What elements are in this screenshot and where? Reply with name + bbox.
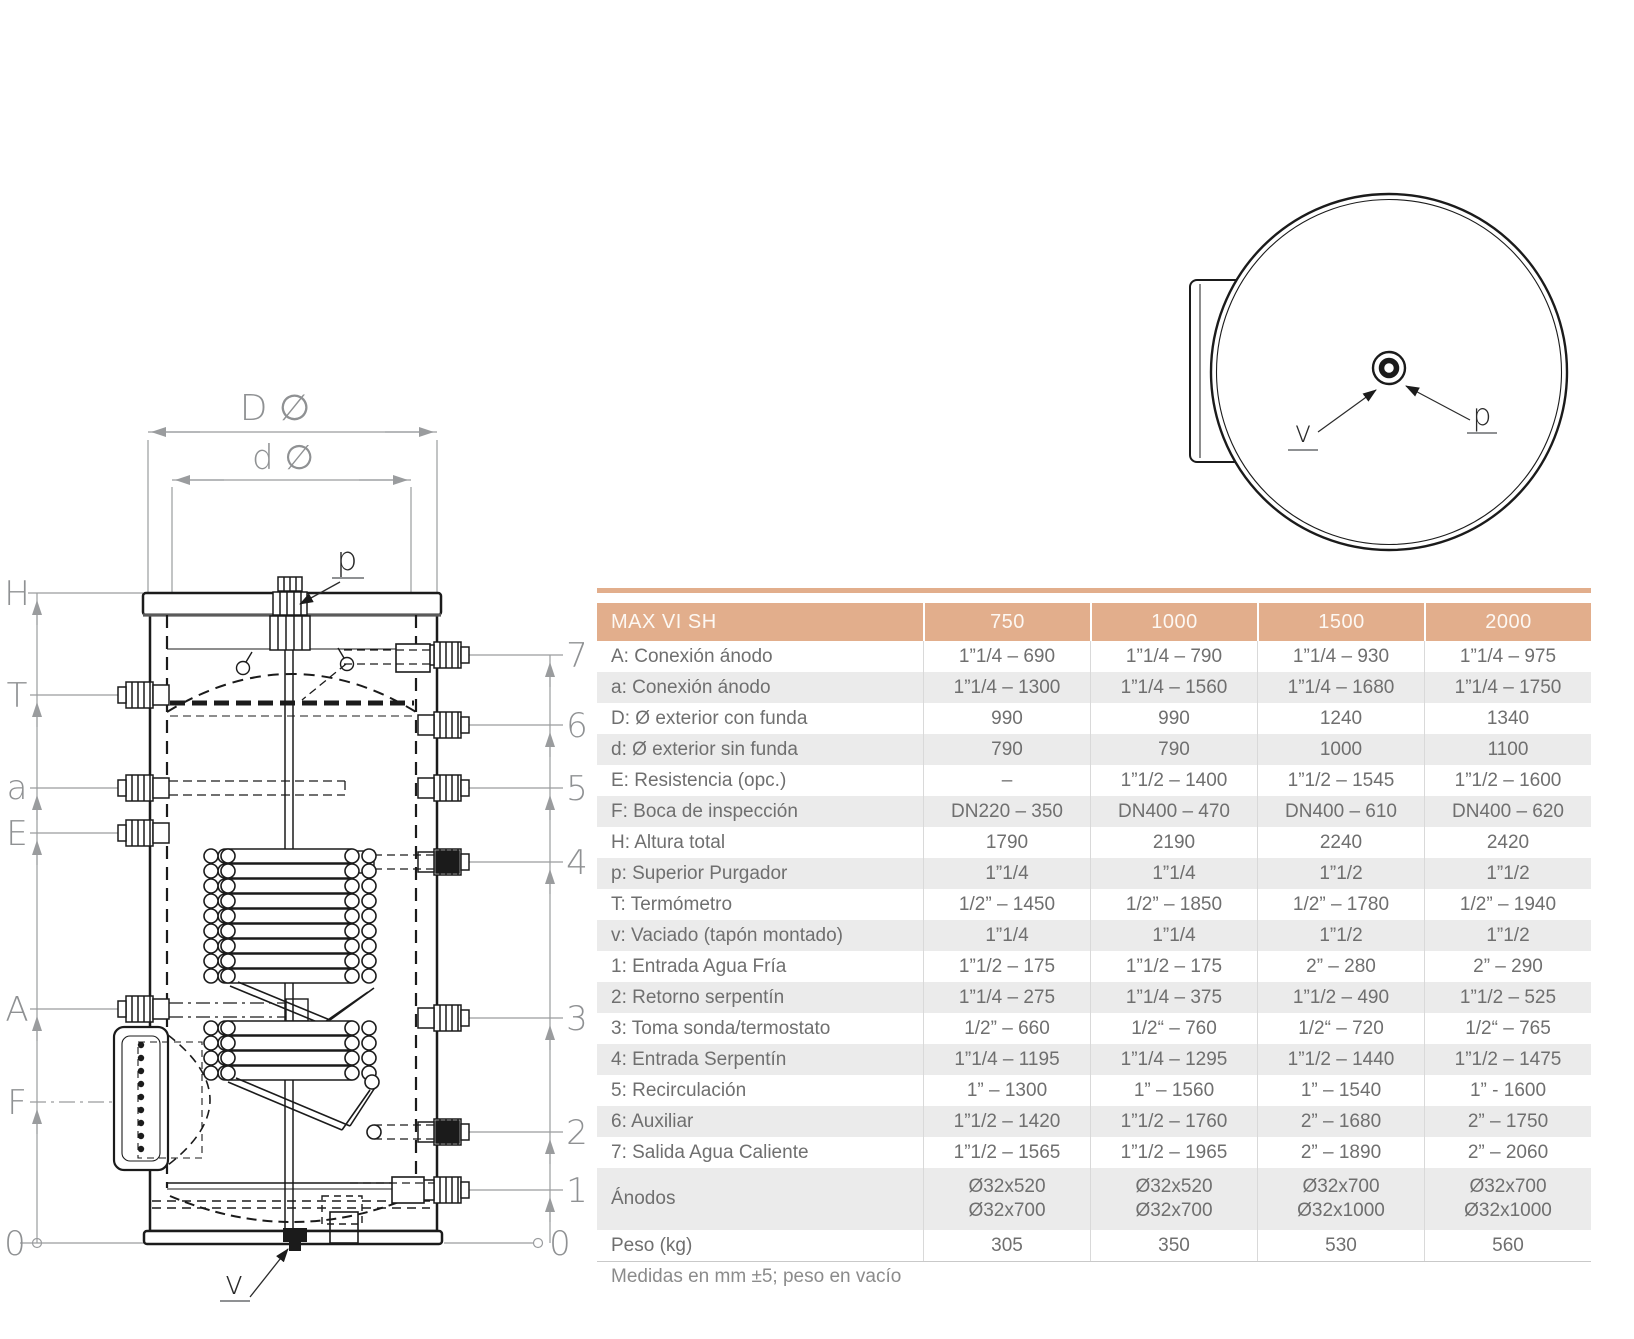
dim-label-1: 1: [566, 1171, 588, 1211]
row-value: 1”1/4 – 930: [1257, 641, 1424, 672]
table-row: 2: Retorno serpentín1”1/4 – 2751”1/4 – 3…: [597, 982, 1591, 1013]
row-value: 1”1/4 – 375: [1090, 982, 1257, 1013]
table-row: E: Resistencia (opc.)–1”1/2 – 14001”1/2 …: [597, 765, 1591, 796]
row-label: p: Superior Purgador: [597, 858, 923, 889]
row-value: 790: [1090, 734, 1257, 765]
column-header-1500: 1500: [1257, 603, 1424, 641]
row-value: 1”1/4 – 790: [1090, 641, 1257, 672]
row-value: DN400 – 470: [1090, 796, 1257, 827]
row-value: 1/2” – 1850: [1090, 889, 1257, 920]
table-row: Peso (kg)305350530560: [597, 1230, 1591, 1261]
row-value: 2190: [1090, 827, 1257, 858]
row-value: 1/2” – 1450: [923, 889, 1090, 920]
table-row: 3: Toma sonda/termostato1/2” – 6601/2“ –…: [597, 1013, 1591, 1044]
row-value: 1790: [923, 827, 1090, 858]
table-body: A: Conexión ánodo1”1/4 – 6901”1/4 – 7901…: [597, 641, 1591, 1262]
row-value: 1”1/2: [1424, 920, 1591, 951]
row-value: 1”1/2 – 1545: [1257, 765, 1424, 796]
callout-p-label: p: [337, 539, 358, 578]
row-value: 1” – 1560: [1090, 1075, 1257, 1106]
row-value: 1”1/4: [1090, 858, 1257, 889]
column-header-1000: 1000: [1090, 603, 1257, 641]
row-value: 1”1/2 – 1965: [1090, 1137, 1257, 1168]
dim-label-A: A: [5, 990, 28, 1030]
table-row: a: Conexión ánodo1”1/4 – 13001”1/4 – 156…: [597, 672, 1591, 703]
row-value: 1”1/4: [923, 858, 1090, 889]
dim-label-T: T: [7, 676, 28, 716]
row-label: H: Altura total: [597, 827, 923, 858]
row-value: 1”1/2 – 1420: [923, 1106, 1090, 1137]
row-value: 1”1/4 – 1560: [1090, 672, 1257, 703]
row-value: 1” - 1600: [1424, 1075, 1591, 1106]
row-value: 1”1/2 – 1760: [1090, 1106, 1257, 1137]
row-value: 1”1/4 – 1680: [1257, 672, 1424, 703]
row-label: Ánodos: [597, 1168, 923, 1230]
row-value: 1”1/2 – 490: [1257, 982, 1424, 1013]
table-row: d: Ø exterior sin funda79079010001100: [597, 734, 1591, 765]
dim-label-2: 2: [566, 1113, 588, 1153]
row-value: 2” – 1680: [1257, 1106, 1424, 1137]
row-label: Peso (kg): [597, 1230, 923, 1261]
table-row: 6: Auxiliar1”1/2 – 14201”1/2 – 17602” – …: [597, 1106, 1591, 1137]
table-row: D: Ø exterior con funda99099012401340: [597, 703, 1591, 734]
row-value: 990: [923, 703, 1090, 734]
table-row: T: Termómetro1/2” – 14501/2” – 18501/2” …: [597, 889, 1591, 920]
row-value: 1”1/2 – 1600: [1424, 765, 1591, 796]
row-value: 1”1/4 – 690: [923, 641, 1090, 672]
table-row: 4: Entrada Serpentín1”1/4 – 11951”1/4 – …: [597, 1044, 1591, 1075]
table-row: p: Superior Purgador1”1/41”1/41”1/21”1/2: [597, 858, 1591, 889]
row-value: 790: [923, 734, 1090, 765]
row-value: 1”1/2: [1424, 858, 1591, 889]
row-value: 1”1/2 – 1440: [1257, 1044, 1424, 1075]
row-value: 1240: [1257, 703, 1424, 734]
table-row: F: Boca de inspecciónDN220 – 350DN400 – …: [597, 796, 1591, 827]
row-value: 1”1/2 – 525: [1424, 982, 1591, 1013]
dim-label-3: 3: [566, 999, 588, 1039]
table-row: A: Conexión ánodo1”1/4 – 6901”1/4 – 7901…: [597, 641, 1591, 672]
row-value: 1”1/4 – 1195: [923, 1044, 1090, 1075]
row-label: 6: Auxiliar: [597, 1106, 923, 1137]
row-value: 1/2“ – 765: [1424, 1013, 1591, 1044]
row-label: v: Vaciado (tapón montado): [597, 920, 923, 951]
column-header-750: 750: [923, 603, 1090, 641]
flange-bolts: [138, 1042, 144, 1152]
row-label: 2: Retorno serpentín: [597, 982, 923, 1013]
row-value: 1”1/4 – 975: [1424, 641, 1591, 672]
row-value: 2240: [1257, 827, 1424, 858]
table-row: 5: Recirculación1” – 13001” – 15601” – 1…: [597, 1075, 1591, 1106]
row-value: 1”1/2 – 175: [1090, 951, 1257, 982]
row-value: 560: [1424, 1230, 1591, 1261]
row-value: 1/2” – 1940: [1424, 889, 1591, 920]
row-value: 1/2” – 1780: [1257, 889, 1424, 920]
row-label: F: Boca de inspección: [597, 796, 923, 827]
row-value: 990: [1090, 703, 1257, 734]
row-label: 3: Toma sonda/termostato: [597, 1013, 923, 1044]
row-value: Ø32x700 Ø32x1000: [1257, 1168, 1424, 1230]
row-value: 1340: [1424, 703, 1591, 734]
row-value: 530: [1257, 1230, 1424, 1261]
row-label: E: Resistencia (opc.): [597, 765, 923, 796]
column-header-2000: 2000: [1424, 603, 1591, 641]
table-header: MAX VI SH 750 1000 1500 2000: [597, 603, 1591, 641]
row-value: 2” – 1890: [1257, 1137, 1424, 1168]
purge-fitting: [270, 577, 310, 650]
row-value: 1”1/4 – 1750: [1424, 672, 1591, 703]
row-value: 1100: [1424, 734, 1591, 765]
dim-label-E: E: [6, 814, 27, 854]
row-value: Ø32x520 Ø32x700: [1090, 1168, 1257, 1230]
row-value: 2” – 290: [1424, 951, 1591, 982]
row-value: 1”1/2 – 175: [923, 951, 1090, 982]
row-label: A: Conexión ánodo: [597, 641, 923, 672]
spec-table: MAX VI SH 750 1000 1500 2000 A: Conexión…: [597, 588, 1591, 1262]
row-value: 2” – 1750: [1424, 1106, 1591, 1137]
dim-label-a: a: [7, 768, 28, 808]
row-value: DN400 – 620: [1424, 796, 1591, 827]
dim-label-zero-right: 0: [549, 1224, 571, 1264]
row-value: 305: [923, 1230, 1090, 1261]
callout-v-label: v: [224, 1263, 244, 1302]
row-value: 1”1/2 – 1475: [1424, 1044, 1591, 1075]
dim-label-6: 6: [566, 706, 588, 746]
row-value: –: [923, 765, 1090, 796]
row-value: 1”1/4 – 1300: [923, 672, 1090, 703]
dim-label-zero-left: 0: [4, 1224, 26, 1264]
table-footnote: Medidas en mm ±5; peso en vacío: [611, 1266, 901, 1288]
row-value: 1/2“ – 720: [1257, 1013, 1424, 1044]
tank-top-view-drawing: v p: [1150, 180, 1610, 580]
row-label: a: Conexión ánodo: [597, 672, 923, 703]
table-row: 1: Entrada Agua Fría1”1/2 – 1751”1/2 – 1…: [597, 951, 1591, 982]
row-value: DN220 – 350: [923, 796, 1090, 827]
table-top-strip: [597, 588, 1591, 593]
dim-label-outer-diameter: D ∅: [240, 388, 311, 429]
row-value: 2” – 280: [1257, 951, 1424, 982]
table-title: MAX VI SH: [597, 603, 923, 641]
row-value: 1”1/2: [1257, 858, 1424, 889]
table-row: ÁnodosØ32x520 Ø32x700Ø32x520 Ø32x700Ø32x…: [597, 1168, 1591, 1230]
table-row: v: Vaciado (tapón montado)1”1/41”1/41”1/…: [597, 920, 1591, 951]
row-label: 1: Entrada Agua Fría: [597, 951, 923, 982]
row-label: 4: Entrada Serpentín: [597, 1044, 923, 1075]
row-value: 1”1/4 – 1295: [1090, 1044, 1257, 1075]
row-label: 7: Salida Agua Caliente: [597, 1137, 923, 1168]
table-row: H: Altura total1790219022402420: [597, 827, 1591, 858]
row-label: 5: Recirculación: [597, 1075, 923, 1106]
row-value: 1”1/4 – 275: [923, 982, 1090, 1013]
row-label: T: Termómetro: [597, 889, 923, 920]
topview-p-label: p: [1472, 398, 1491, 433]
row-value: 350: [1090, 1230, 1257, 1261]
dim-label-5: 5: [566, 769, 588, 809]
tank-top-circle: [1211, 194, 1567, 550]
dim-label-F: F: [7, 1083, 27, 1123]
dim-label-inner-diameter: d ∅: [252, 438, 314, 478]
row-value: DN400 – 610: [1257, 796, 1424, 827]
row-value: 1”1/4: [923, 920, 1090, 951]
row-label: D: Ø exterior con funda: [597, 703, 923, 734]
dim-label-H: H: [4, 574, 30, 614]
topview-v-label: v: [1294, 415, 1312, 450]
table-row: 7: Salida Agua Caliente1”1/2 – 15651”1/2…: [597, 1137, 1591, 1168]
dim-label-7: 7: [566, 636, 588, 676]
row-value: 1”1/4: [1090, 920, 1257, 951]
row-value: 1” – 1540: [1257, 1075, 1424, 1106]
row-value: 1000: [1257, 734, 1424, 765]
row-value: Ø32x520 Ø32x700: [923, 1168, 1090, 1230]
row-value: 1”1/2 – 1400: [1090, 765, 1257, 796]
tank-front-view-drawing: D ∅ d ∅ H T a E A F 0 7 6 5 4 3 2 1 0: [0, 0, 600, 1339]
dim-label-4: 4: [566, 843, 588, 883]
row-value: 1” – 1300: [923, 1075, 1090, 1106]
row-value: Ø32x700 Ø32x1000: [1424, 1168, 1591, 1230]
row-value: 2420: [1424, 827, 1591, 858]
row-value: 1”1/2 – 1565: [923, 1137, 1090, 1168]
drain-plug: [283, 1228, 307, 1251]
row-value: 1/2“ – 760: [1090, 1013, 1257, 1044]
row-value: 2” – 2060: [1424, 1137, 1591, 1168]
row-value: 1”1/2: [1257, 920, 1424, 951]
row-value: 1/2” – 660: [923, 1013, 1090, 1044]
row-label: d: Ø exterior sin funda: [597, 734, 923, 765]
